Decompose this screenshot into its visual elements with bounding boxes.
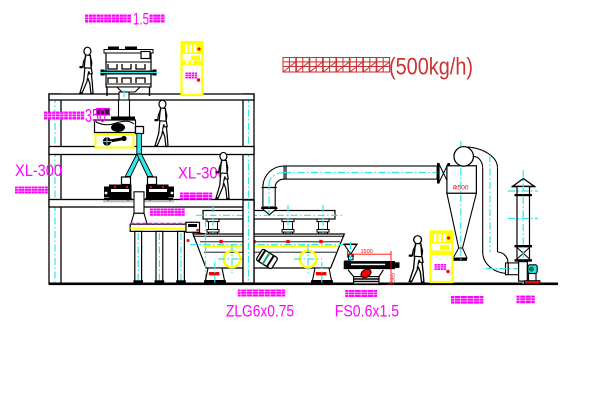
svg-text:FS0.6x1.5: FS0.6x1.5 [335, 302, 400, 321]
svg-text:ZLG6x0.75: ZLG6x0.75 [226, 302, 294, 321]
svg-text:595: 595 [388, 273, 394, 282]
svg-text:XL-300: XL-300 [15, 161, 62, 180]
svg-text:(500kg/h): (500kg/h) [389, 54, 473, 81]
svg-text:1500: 1500 [361, 249, 373, 255]
svg-text:1.5: 1.5 [133, 10, 149, 29]
svg-text:350: 350 [85, 106, 106, 126]
